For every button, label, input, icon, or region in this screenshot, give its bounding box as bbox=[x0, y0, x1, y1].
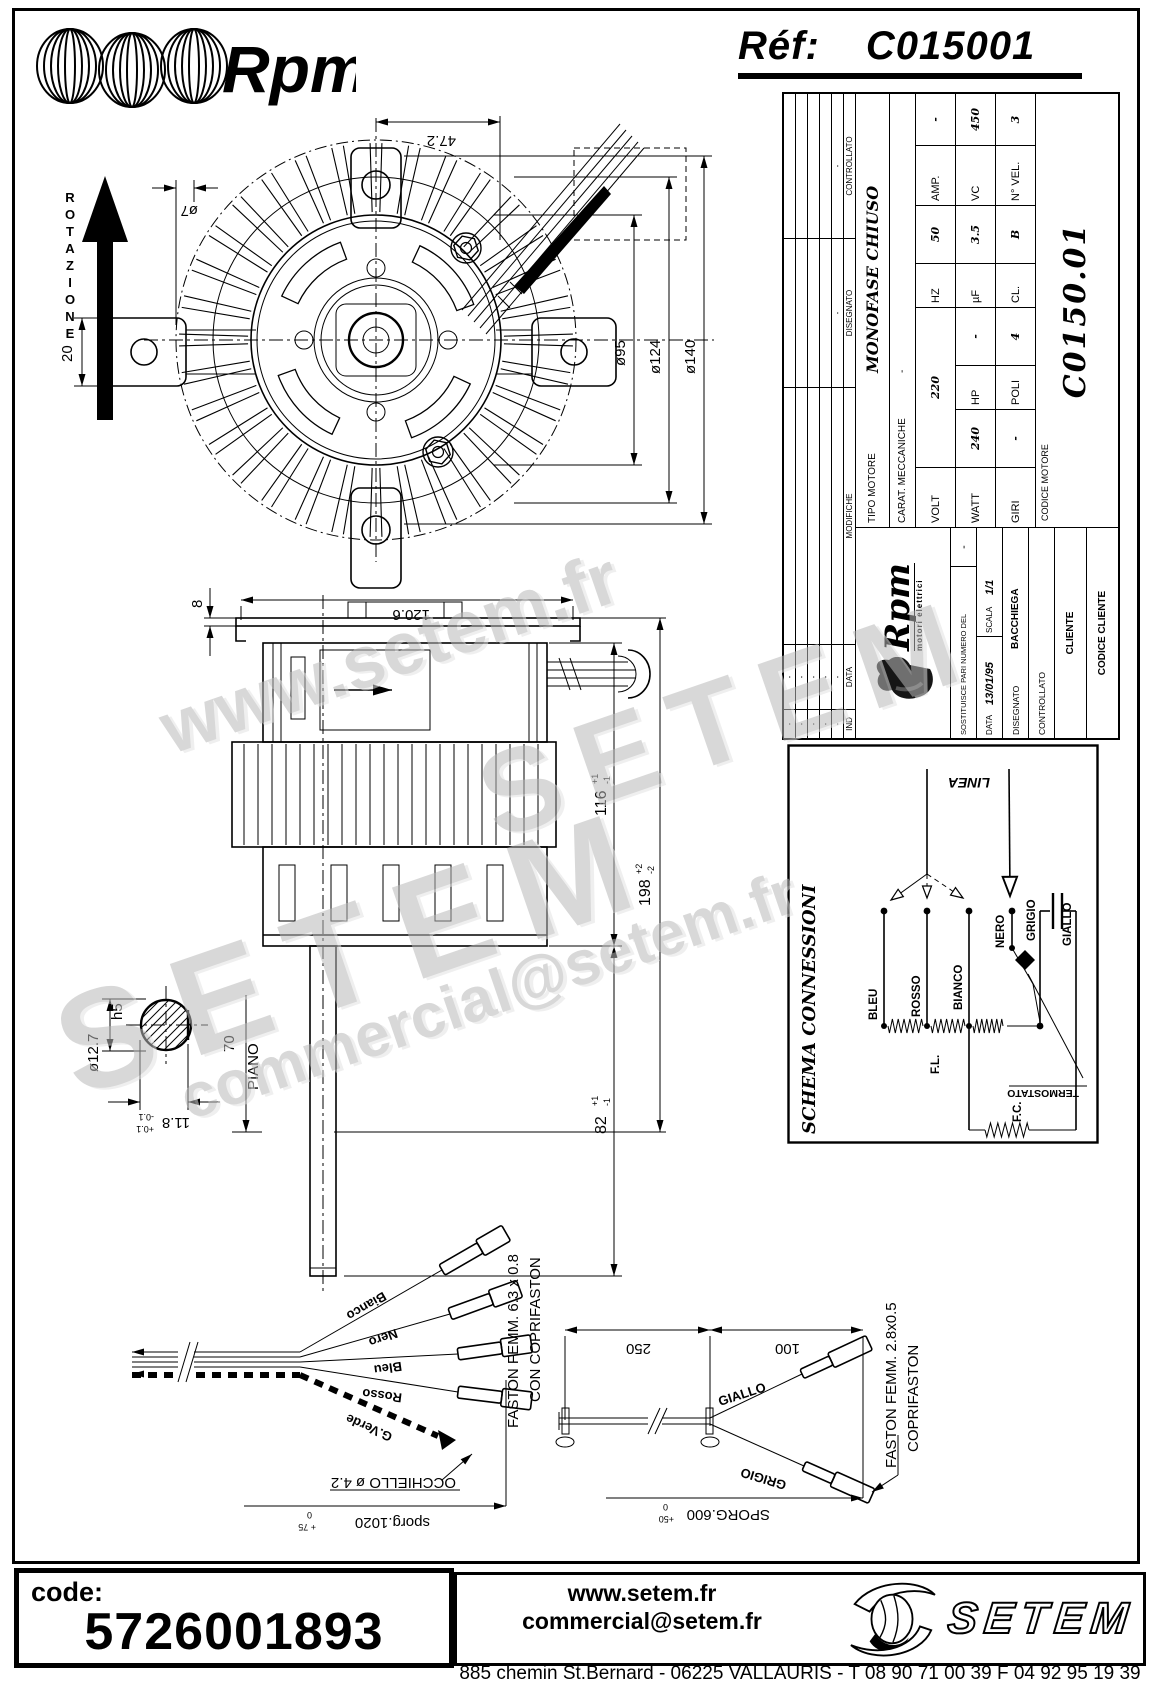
vc-value: 450 bbox=[956, 94, 995, 145]
tipo-motore-label: TIPO MOTORE bbox=[867, 373, 878, 527]
rev-header-modifiche: MODIFICHE bbox=[844, 387, 855, 644]
footer-email: commercial@setem.fr bbox=[457, 1607, 827, 1635]
stator-laminations bbox=[244, 744, 538, 845]
front-view: ROTAZIONE 47.2 ø7 20 ø95 bbox=[59, 116, 714, 588]
dim-198: 198 bbox=[637, 879, 654, 906]
volt-value: 220 bbox=[916, 307, 955, 467]
carat-value: - bbox=[897, 370, 908, 373]
rev-header-ind: IND bbox=[844, 709, 855, 738]
schema-termostato: TERMOSTATO bbox=[1007, 1087, 1079, 1099]
data-value: 13/01/95 bbox=[984, 637, 996, 705]
code-box: code: 5726001893 bbox=[14, 1568, 454, 1668]
rev-cell: - bbox=[808, 709, 819, 738]
dim-120-6: 120.6 bbox=[392, 606, 430, 623]
footer-website: www.setem.fr bbox=[457, 1579, 827, 1607]
sporg-600-label: SPORG.600 bbox=[687, 1506, 770, 1523]
sostituisce-label: SOSTITUISCE PARI NUMERO DEL bbox=[959, 567, 968, 738]
ref-value: C015001 bbox=[866, 24, 1035, 68]
uf-label: µF bbox=[956, 263, 995, 307]
dim-250: 250 bbox=[626, 1340, 651, 1357]
setem-swoosh-icon bbox=[836, 1577, 948, 1661]
codice-motore-label: CODICE MOTORE bbox=[1040, 444, 1050, 521]
rpm-script: Rpm bbox=[883, 563, 913, 651]
schema-bleu: BLEU bbox=[868, 989, 880, 1020]
hp-value: - bbox=[956, 307, 995, 365]
rev-cell: - bbox=[796, 644, 807, 709]
drawing-sheet: Rpm Réf: C015001 bbox=[0, 0, 1154, 1683]
faston-connector-small bbox=[801, 1459, 875, 1504]
dim-o140: ø140 bbox=[682, 340, 699, 374]
dim-100: 100 bbox=[775, 1340, 800, 1357]
rev-cell: - bbox=[832, 709, 843, 738]
wire-label-gverde: G.Verde bbox=[343, 1411, 394, 1445]
linea-label: LINEA bbox=[948, 775, 990, 791]
carat-label: CARAT. MECCANICHE bbox=[897, 373, 908, 527]
wire-label-giallo: GIALLO bbox=[716, 1379, 767, 1408]
watt-value: 240 bbox=[956, 409, 995, 467]
dim-82: 82 bbox=[593, 1116, 610, 1134]
footer-contact: www.setem.fr commercial@setem.fr SETEM 8… bbox=[454, 1572, 1146, 1666]
giri-value: - bbox=[996, 409, 1035, 467]
rev-cell: - bbox=[796, 709, 807, 738]
nvel-label: N° VEL. bbox=[996, 145, 1035, 205]
faston-connector bbox=[438, 1225, 511, 1278]
title-block: -- -- -- -- ---- IND DATA MODIFICHE DISE… bbox=[782, 92, 1120, 740]
wiring-schema: SCHEMA CONNESSIONI LINEA BLEU ROSSO BIAN… bbox=[787, 744, 1099, 1144]
rpm-hand-icon bbox=[872, 657, 934, 703]
setem-logo-text: SETEM bbox=[945, 1594, 1137, 1644]
wire-label-grigio: GRIGIO bbox=[739, 1465, 788, 1493]
sporg-600-tol-minus: 0 bbox=[663, 1502, 668, 1512]
rotation-arrow bbox=[82, 176, 128, 420]
schema-rosso: ROSSO bbox=[911, 975, 923, 1017]
dim-116-tol-plus: +1 bbox=[590, 774, 600, 784]
cl-label: CL. bbox=[996, 263, 1035, 307]
amp-value: - bbox=[916, 94, 955, 145]
dim-o95: ø95 bbox=[612, 340, 629, 366]
dim-198-tol-plus: +2 bbox=[634, 864, 644, 874]
dim-o124: ø124 bbox=[647, 340, 664, 374]
capacitor-cable-drawing: 250 100 GIALLO GRIGIO SPORG.600 bbox=[556, 1302, 922, 1524]
side-dimensions-right: 116 +1 -1 82 +1 -1 198 +2 -2 bbox=[334, 618, 666, 1276]
amp-label: AMP. bbox=[916, 145, 955, 205]
wire-harness-drawing: Bianco Nero Bleu Rosso G.Verde FASTON FE… bbox=[132, 1225, 544, 1532]
scala-value: 1/1 bbox=[984, 528, 996, 595]
dim-82-tol-minus: -1 bbox=[602, 1098, 612, 1106]
hz-value: 50 bbox=[916, 205, 955, 263]
faston-63-label: FASTON FEMM. 6.3 x 0.8 bbox=[505, 1254, 522, 1428]
rev-cell: - bbox=[784, 709, 795, 738]
sporg-1020-tol-plus: + 75 bbox=[298, 1522, 316, 1532]
rev-header-disegnato: DISEGNATO bbox=[844, 238, 855, 387]
nvel-value: 3 bbox=[996, 94, 1035, 145]
cliente-label: CLIENTE bbox=[1055, 528, 1087, 738]
tipo-motore-value: MONOFASE CHIUSO bbox=[863, 186, 882, 373]
scala-label: SCALA bbox=[977, 595, 1002, 637]
dim-70: 70 bbox=[221, 1035, 238, 1052]
reference-title: Réf: C015001 bbox=[738, 24, 1082, 79]
rev-cell: - bbox=[820, 709, 831, 738]
volt-label: VOLT bbox=[916, 467, 955, 527]
dim-11-8-tol-minus: -0.1 bbox=[138, 1112, 154, 1122]
wiring-schema-block: SCHEMA CONNESSIONI LINEA BLEU ROSSO BIAN… bbox=[787, 744, 1099, 1144]
sporg-1020-label: sporg.1020 bbox=[355, 1514, 430, 1531]
schema-fc: F.C. bbox=[1012, 1102, 1024, 1122]
motor-body-side bbox=[232, 643, 650, 1276]
rev-cell: - bbox=[832, 644, 843, 709]
occhiello-label: OCCHIELLO ø 4.2 bbox=[331, 1474, 456, 1491]
shaft-section-detail: h5 ø12.7 11.8 +0.1 -0.1 bbox=[85, 951, 220, 1134]
uf-value: 3.5 bbox=[956, 205, 995, 263]
schema-giallo: GIALLO bbox=[1062, 903, 1074, 946]
poli-value: 4 bbox=[996, 307, 1035, 365]
schema-bianco: BIANCO bbox=[953, 965, 965, 1010]
piano-label: PIANO bbox=[245, 1043, 262, 1090]
schema-title: SCHEMA CONNESSIONI bbox=[799, 884, 820, 1134]
hz-label: HZ bbox=[916, 263, 955, 307]
wire-label-nero: Nero bbox=[367, 1326, 400, 1350]
faston-28-label: FASTON FEMM. 2.8x0.5 bbox=[883, 1302, 900, 1468]
disegnato-value: BACCHIEGA bbox=[1010, 528, 1021, 649]
schema-nero: NERO bbox=[995, 915, 1007, 948]
hp-label: HP bbox=[956, 365, 995, 409]
data-label: DATA bbox=[985, 705, 994, 738]
rev-cell: - bbox=[820, 644, 831, 709]
mounting-tabs bbox=[102, 148, 616, 588]
side-view: 120.6 8 bbox=[189, 588, 666, 1295]
code-value: 5726001893 bbox=[19, 1602, 449, 1662]
dim-198-tol-minus: -2 bbox=[646, 866, 656, 874]
revision-table: -- -- -- -- ---- IND DATA MODIFICHE DISE… bbox=[784, 94, 856, 738]
dim-20: 20 bbox=[59, 345, 76, 362]
codice-motore-cell: CODICE MOTORE C0150.01 bbox=[1036, 94, 1118, 527]
ref-label: Réf: bbox=[738, 24, 820, 68]
sporg-1020-tol-minus: 0 bbox=[307, 1510, 312, 1520]
faston-connector-small bbox=[799, 1335, 873, 1381]
dim-11-8: 11.8 bbox=[162, 1114, 190, 1131]
dim-47-2: 47.2 bbox=[427, 132, 456, 149]
wire-label-bleu: Bleu bbox=[373, 1359, 403, 1378]
dim-o12-7: ø12.7 bbox=[85, 1034, 102, 1072]
disegnato-label: DISEGNATO bbox=[1011, 649, 1021, 738]
rev-cell: - bbox=[832, 94, 843, 238]
dim-116-tol-minus: -1 bbox=[602, 776, 612, 784]
schema-fl: F.L. bbox=[930, 1055, 942, 1074]
giri-label: GIRI bbox=[996, 467, 1035, 527]
piano-dimension: 70 PIANO bbox=[221, 995, 262, 1132]
coprifaston-63-label: CON COPRIFASTON bbox=[527, 1257, 544, 1402]
footer-address: 885 chemin St.Bernard - 06225 VALLAURIS … bbox=[457, 1663, 1143, 1683]
rev-header-controllato: CONTROLLATO bbox=[844, 94, 855, 238]
cl-value: B bbox=[996, 205, 1035, 263]
controllato-label: CONTROLLATO bbox=[1037, 649, 1047, 738]
coprifaston-28-label: COPRIFASTON bbox=[905, 1345, 922, 1452]
rev-header-data: DATA bbox=[844, 644, 855, 709]
rotazione-label: ROTAZIONE bbox=[63, 190, 78, 343]
dim-8: 8 bbox=[189, 600, 206, 608]
codice-motore-value: C0150.01 bbox=[1058, 94, 1093, 527]
vc-label: VC bbox=[956, 145, 995, 205]
dim-11-8-tol-plus: +0.1 bbox=[136, 1124, 154, 1134]
sostituisce-value: - bbox=[951, 528, 976, 567]
dim-116: 116 bbox=[593, 790, 610, 816]
codice-cliente-label: CODICE CLIENTE bbox=[1087, 528, 1118, 738]
sporg-600-tol-plus: +50 bbox=[659, 1514, 674, 1524]
h5-label: h5 bbox=[109, 1003, 126, 1020]
schema-grigio: GRIGIO bbox=[1026, 899, 1038, 941]
poli-label: POLI bbox=[996, 365, 1035, 409]
dim-82-tol-plus: +1 bbox=[590, 1096, 600, 1106]
dim-o7: ø7 bbox=[180, 202, 198, 219]
rev-cell: - bbox=[832, 238, 843, 387]
watt-label: WATT bbox=[956, 467, 995, 527]
rpm-titleblock-logo: Rpm motori elettrici bbox=[856, 528, 951, 738]
rev-cell: - bbox=[784, 644, 795, 709]
wire-label-bianco: Bianco bbox=[344, 1289, 389, 1324]
rev-cell: - bbox=[808, 644, 819, 709]
